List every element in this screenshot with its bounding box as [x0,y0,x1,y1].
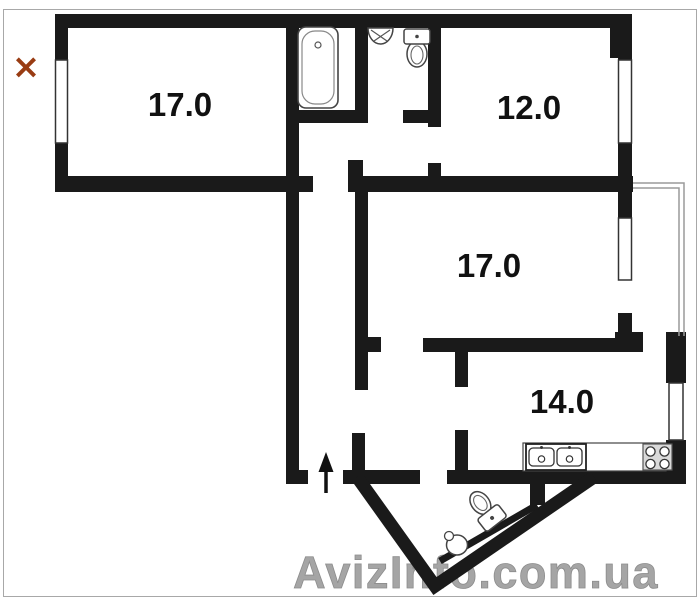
wall-segment [348,160,363,176]
wall-segment [355,192,368,390]
wash-basin-icon [368,28,393,44]
wall-segment [618,14,632,60]
wall-segment [55,14,632,28]
balcony-inner-line [633,188,679,336]
entrance-arrow-icon [319,452,334,493]
balcony-railing [633,183,684,336]
toilet-icon [404,29,430,67]
wall-segment [447,470,686,484]
wall-segment [286,470,308,484]
wall-segment [352,433,365,470]
wall-segment [55,14,68,60]
balcony-outer-line [633,183,684,336]
kitchen-counter [523,443,672,471]
wall-segment [355,337,381,352]
floor-plan: AvizInfo.com.ua × [0,0,700,600]
wall-segment [348,176,633,192]
wall-segment [666,332,686,383]
room-top-right-area-label: 12.0 [497,89,561,126]
wall-segment [286,23,299,470]
wall-segment [618,192,632,218]
window [619,218,632,280]
kitchen-sink-icon [526,444,586,470]
wall-segment [530,484,545,505]
wall-segment [455,430,468,470]
wall-segment [618,313,632,333]
wall-segment [286,110,368,123]
image-border [4,10,697,597]
room-kitchen-area-label: 14.0 [530,383,594,420]
wall-segment [423,338,643,352]
wall-segment [55,176,313,192]
location-cross-icon: × [12,47,41,87]
window [669,383,683,440]
window [56,60,68,143]
wall-segment [615,332,643,348]
bathtub-icon [298,27,338,108]
wall-segment [428,163,441,176]
wall-segment [355,28,368,123]
room-middle-area-label: 17.0 [457,247,521,284]
room-top-left-area-label: 17.0 [148,86,212,123]
stove-icon [643,444,672,470]
wall-segment [455,352,468,387]
window [619,60,632,143]
